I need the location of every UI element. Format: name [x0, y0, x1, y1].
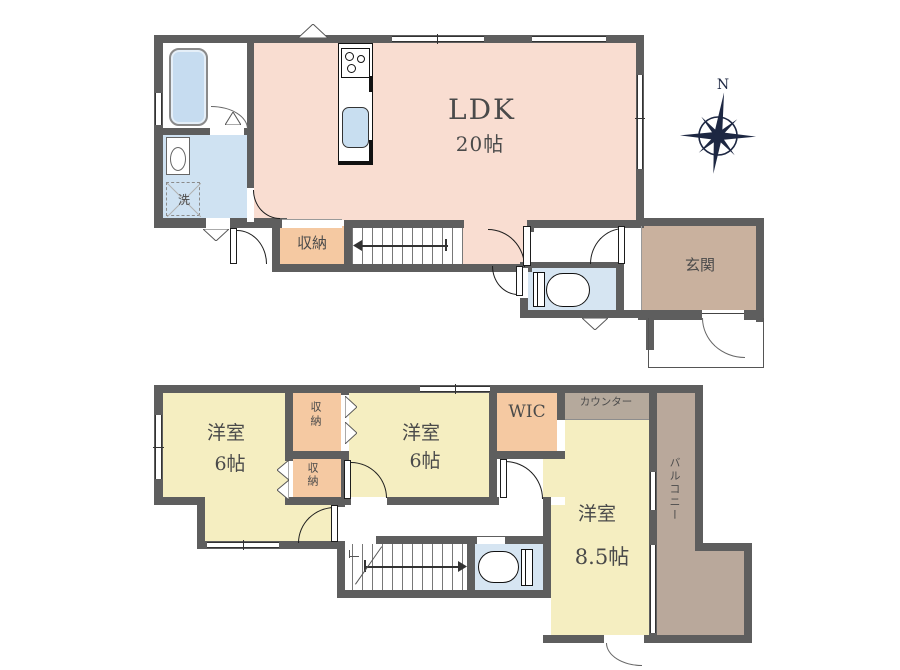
- bathtub-icon: [169, 48, 208, 126]
- door-leaf: [523, 226, 531, 266]
- window: [650, 472, 656, 510]
- wall: [489, 451, 565, 459]
- vanity-basin-icon: [170, 147, 186, 171]
- plan-line: [349, 550, 350, 558]
- toilet-tank-line-1f: [537, 273, 538, 306]
- wall: [649, 393, 657, 420]
- fold-door-mark: [345, 396, 357, 418]
- door-opening: [206, 218, 230, 228]
- fold-door-mark: [277, 480, 289, 500]
- window-tick: [437, 34, 438, 44]
- door-opening: [351, 497, 387, 505]
- stove-burner-1: [345, 52, 354, 61]
- plan-line: [349, 556, 359, 557]
- entrance-label: 玄関: [685, 258, 715, 273]
- wall: [695, 385, 703, 551]
- plan-line: [360, 245, 448, 247]
- plan-line: [364, 566, 460, 568]
- wall: [756, 218, 764, 322]
- door-opening: [337, 507, 345, 541]
- door-swing-arc: [492, 266, 518, 295]
- door-opening: [604, 635, 644, 643]
- door-opening: [210, 128, 244, 135]
- door-leaf: [516, 266, 523, 296]
- room-left-a: [163, 393, 289, 497]
- fold-door-mark: [298, 24, 328, 38]
- wall: [744, 551, 752, 643]
- plan-line: [565, 419, 649, 420]
- room-left-size-label: 6帖: [214, 455, 245, 474]
- window-tick: [153, 447, 164, 448]
- room-main-b: [551, 505, 565, 637]
- room-main-pocket: [543, 459, 565, 497]
- room-main-size-label: 8.5帖: [575, 547, 629, 568]
- floor-plan: 洗 N LDK 20帖 収納 玄関 洋室 6帖 収納: [0, 0, 900, 670]
- window: [637, 75, 643, 169]
- door-opening: [477, 537, 505, 544]
- wall: [344, 220, 464, 228]
- ldk-label: LDK: [448, 96, 516, 124]
- toilet-tank-1f: [533, 272, 545, 307]
- toilet-tank-line-2f: [525, 550, 526, 585]
- laundry-label: 洗: [178, 194, 190, 206]
- plan-line: [702, 313, 744, 314]
- door-swing-arc: [237, 230, 267, 264]
- plan-line: [445, 239, 447, 251]
- room-mid-label: 洋室: [402, 424, 440, 443]
- wall: [530, 220, 644, 228]
- fold-door-mark: [582, 318, 608, 330]
- room-ldk: [254, 43, 636, 220]
- wall: [489, 385, 497, 497]
- window: [650, 545, 656, 633]
- wall: [344, 228, 352, 264]
- wall: [467, 536, 475, 598]
- door-leaf: [230, 228, 237, 264]
- wic-label: WIC: [508, 404, 545, 421]
- wall: [543, 536, 551, 598]
- counter-label: カウンター: [580, 397, 633, 408]
- window: [155, 93, 162, 125]
- kitchen-edge-3: [339, 161, 373, 165]
- stove-burner-3: [347, 64, 356, 73]
- wall: [285, 385, 293, 461]
- storage-1f-label: 収納: [297, 236, 327, 251]
- stove-burner-2: [357, 55, 365, 63]
- room-left-label: 洋室: [207, 424, 245, 443]
- wall: [376, 536, 473, 544]
- wall: [636, 218, 764, 226]
- ldk-size-label: 20帖: [456, 134, 504, 154]
- door-swing-arc: [606, 643, 642, 666]
- wall: [520, 310, 624, 318]
- door-leaf: [618, 226, 625, 264]
- wall: [341, 385, 349, 395]
- window-tick: [455, 384, 456, 394]
- window-tick: [635, 118, 645, 119]
- wall: [285, 451, 349, 459]
- wall: [543, 635, 752, 643]
- wall: [703, 543, 752, 551]
- window: [532, 36, 606, 42]
- room-mid-size-label: 6帖: [409, 452, 440, 471]
- window-tick: [243, 540, 244, 550]
- fold-door-mark: [277, 460, 289, 480]
- room-main-a: [565, 420, 649, 637]
- compass-north-label: N: [717, 78, 729, 92]
- closet-bottom-label: 収納: [307, 462, 318, 500]
- toilet-bowl-1f: [546, 273, 590, 307]
- kitchen-edge-1: [369, 76, 373, 92]
- toilet-bowl-2f: [478, 551, 519, 583]
- closet-top-label: 収納: [310, 401, 321, 449]
- door-swing-arc: [505, 461, 543, 499]
- plan-line: [641, 226, 642, 310]
- door-leaf: [500, 459, 507, 498]
- balcony-label: バルコニー: [669, 457, 680, 572]
- laundry-pan-icon: 洗: [166, 182, 200, 216]
- wall: [557, 385, 565, 420]
- fold-door-mark: [345, 422, 357, 444]
- toilet-tank-2f: [521, 549, 533, 586]
- room-left-b: [205, 497, 289, 541]
- door-leaf: [331, 505, 338, 542]
- wall: [337, 590, 551, 598]
- fold-door-mark: [225, 112, 241, 125]
- room-main-label: 洋室: [578, 505, 616, 524]
- fold-door-mark: [203, 229, 229, 241]
- kitchen-sink-icon: [342, 107, 369, 148]
- door-leaf: [344, 460, 351, 499]
- storage-opening: [282, 219, 342, 228]
